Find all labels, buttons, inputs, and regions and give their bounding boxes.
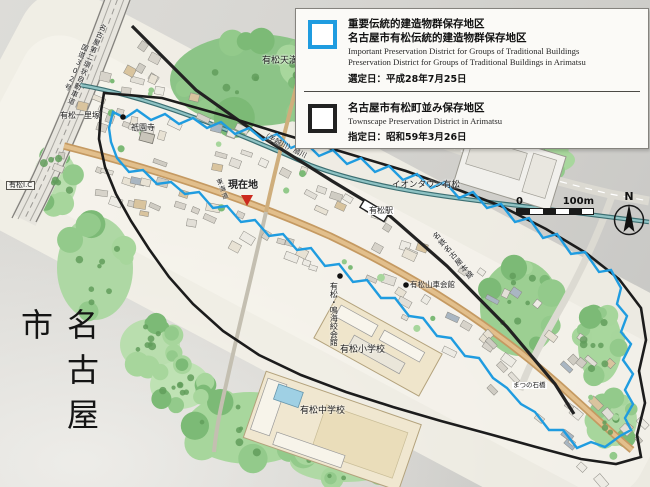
poi-dot-marker [120, 114, 126, 120]
map-label: 有松小学校 [340, 346, 385, 355]
map-label: 有松駅 [368, 207, 394, 215]
city-name-label: 名古屋市 [12, 308, 104, 487]
legend-swatch-0 [308, 20, 337, 49]
legend-title-ja: 名古屋市有松伝統的建造物群保存地区 [348, 32, 586, 46]
scale-end-label: 100m [563, 196, 594, 207]
map-label: 有松中学校 [300, 407, 345, 416]
compass-needle [624, 204, 635, 232]
legend-title-en: Important Preservation District for Grou… [348, 46, 586, 56]
poi-dot-marker [403, 282, 409, 288]
legend-title-en: Preservation District for Groups of Trad… [348, 57, 586, 67]
scale-start-label: 0 [516, 196, 523, 207]
poi-dot-marker [337, 273, 343, 279]
scale-bar: 0 100m [516, 196, 594, 215]
scale-rule [516, 208, 594, 215]
map-label: 有松山車会館 [410, 281, 455, 289]
legend-swatch-1 [308, 104, 337, 133]
legend-title-en: Townscape Preservation District in Arima… [348, 116, 502, 126]
legend-date: 選定日：平成28年7月25日 [348, 71, 586, 85]
map-label: 有松・鳴海絞会館 [329, 282, 337, 334]
legend-entry-traditional: 重要伝統的建造物群保存地区 名古屋市有松伝統的建造物群保存地区 Importan… [296, 9, 648, 90]
legend-title-ja: 名古屋市有松町並み保存地区 [348, 102, 502, 116]
map-label: 有松I.C [6, 181, 35, 190]
map-label: 現在地 [228, 181, 258, 192]
legend-divider [304, 91, 640, 92]
legend: 重要伝統的建造物群保存地区 名古屋市有松伝統的建造物群保存地区 Importan… [295, 8, 649, 149]
north-arrow: N [606, 188, 650, 242]
legend-date: 指定日：昭和59年3月26日 [348, 129, 502, 143]
north-label: N [624, 190, 633, 203]
legend-title-ja: 重要伝統的建造物群保存地区 [348, 18, 586, 32]
map-label: イオンタウン有松 [392, 181, 460, 190]
map-label: 有松一里塚 [60, 112, 100, 120]
map-label: まつの石橋 [512, 382, 547, 389]
map-board: 有松天満社有松一里塚祇園寺有松I.C国道302号名古屋第二環状自動車道（手越川）… [0, 0, 650, 487]
legend-entry-townscape: 名古屋市有松町並み保存地区 Townscape Preservation Dis… [296, 93, 648, 149]
map-label: 祇園寺 [131, 124, 155, 132]
